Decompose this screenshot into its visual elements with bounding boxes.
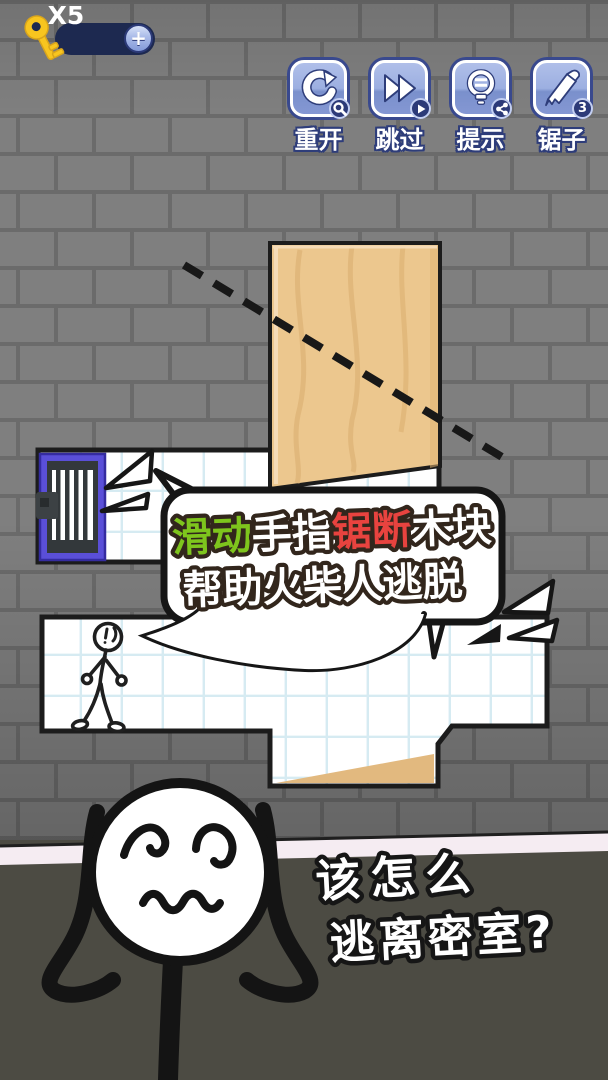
skip-badge bbox=[410, 98, 431, 119]
skip-label: 跳过 bbox=[376, 120, 424, 155]
add-keys-button[interactable]: + bbox=[124, 24, 153, 53]
restart-badge bbox=[329, 98, 350, 119]
saw-badge: 3 bbox=[572, 98, 593, 119]
hud-cell-hint: 提示 bbox=[452, 60, 509, 155]
share-badge-icon bbox=[493, 100, 510, 117]
caption-line1: 该怎么 bbox=[314, 847, 482, 909]
prison-door bbox=[36, 454, 105, 560]
hint-label: 提示 bbox=[457, 120, 505, 155]
hud-cell-restart: 重开 bbox=[290, 60, 347, 155]
hint-button[interactable] bbox=[452, 60, 509, 117]
scene-canvas: 滑动手指锯断木块 帮助火柴人逃脱 该怎么 逃离密室? bbox=[0, 0, 608, 1080]
restart-label: 重开 bbox=[295, 120, 343, 155]
saw-count: 3 bbox=[574, 100, 591, 117]
bubble-line2: 帮助火柴人逃脱 bbox=[182, 559, 463, 615]
head bbox=[91, 783, 269, 961]
hud-cell-skip: 跳过 bbox=[371, 60, 428, 155]
saw-button[interactable]: 3 bbox=[533, 60, 590, 117]
restart-button[interactable] bbox=[290, 60, 347, 117]
wood-plank[interactable] bbox=[270, 243, 440, 489]
saw-label: 锯子 bbox=[538, 120, 586, 155]
key-icon bbox=[18, 10, 76, 70]
door-top-rail bbox=[47, 461, 98, 470]
play-badge-icon bbox=[412, 100, 429, 117]
hud-buttons: 重开 跳过 bbox=[290, 60, 590, 155]
plus-label: + bbox=[126, 26, 151, 50]
body bbox=[168, 960, 173, 1080]
game-screen: 滑动手指锯断木块 帮助火柴人逃脱 该怎么 逃离密室? X5 bbox=[0, 0, 608, 1080]
skip-button[interactable] bbox=[371, 60, 428, 117]
magnifier-key-badge-icon bbox=[331, 100, 348, 117]
door-bottom-rail bbox=[47, 540, 98, 553]
hud-cell-saw: 3 锯子 bbox=[533, 60, 590, 155]
hint-badge bbox=[491, 98, 512, 119]
